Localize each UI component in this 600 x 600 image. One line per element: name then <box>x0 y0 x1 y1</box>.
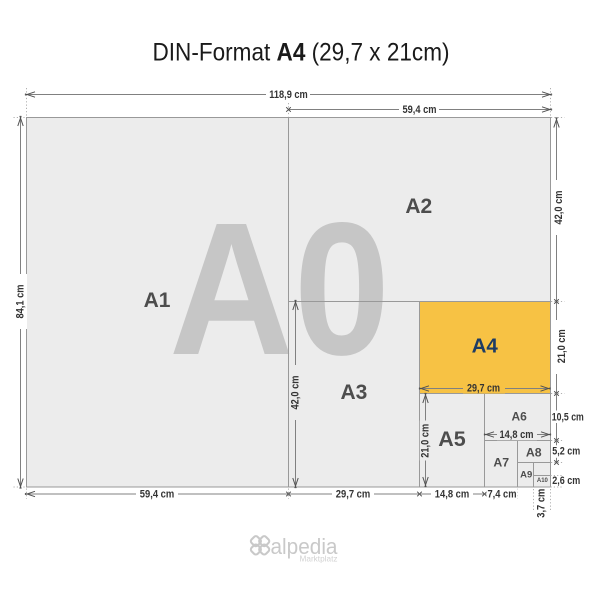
svg-text:21,0 cm: 21,0 cm <box>419 424 431 458</box>
svg-text:21,0 cm: 21,0 cm <box>556 329 568 363</box>
svg-text:7,4 cm: 7,4 cm <box>488 489 517 501</box>
svg-text:10,5 cm: 10,5 cm <box>552 411 584 423</box>
svg-text:A3: A3 <box>340 381 367 404</box>
svg-text:Marktplatz: Marktplatz <box>300 554 338 564</box>
svg-text:A7: A7 <box>493 456 509 470</box>
svg-text:A4: A4 <box>472 335 499 358</box>
svg-text:A6: A6 <box>512 410 528 424</box>
svg-text:5,2 cm: 5,2 cm <box>552 446 580 458</box>
svg-text:A10: A10 <box>537 478 549 484</box>
svg-text:A1: A1 <box>144 289 171 312</box>
svg-text:3,7 cm: 3,7 cm <box>536 489 548 518</box>
svg-text:A5: A5 <box>438 427 466 451</box>
svg-text:DIN-Format A4 (29,7 x 21cm): DIN-Format A4 (29,7 x 21cm) <box>153 38 450 66</box>
svg-text:A8: A8 <box>526 445 542 459</box>
svg-text:29,7 cm: 29,7 cm <box>336 489 371 501</box>
svg-text:14,8 cm: 14,8 cm <box>500 429 534 441</box>
svg-text:A0: A0 <box>169 184 390 395</box>
svg-text:42,0 cm: 42,0 cm <box>290 376 302 410</box>
svg-text:14,8 cm: 14,8 cm <box>435 489 470 501</box>
svg-text:42,0 cm: 42,0 cm <box>553 191 565 225</box>
svg-text:59,4 cm: 59,4 cm <box>403 104 437 116</box>
svg-text:A2: A2 <box>405 195 432 218</box>
svg-text:59,4 cm: 59,4 cm <box>140 489 175 501</box>
svg-text:2,6 cm: 2,6 cm <box>552 475 580 487</box>
svg-text:84,1 cm: 84,1 cm <box>15 285 27 319</box>
svg-text:29,7 cm: 29,7 cm <box>467 383 500 395</box>
svg-text:A9: A9 <box>520 470 532 481</box>
svg-text:118,9 cm: 118,9 cm <box>269 89 308 101</box>
